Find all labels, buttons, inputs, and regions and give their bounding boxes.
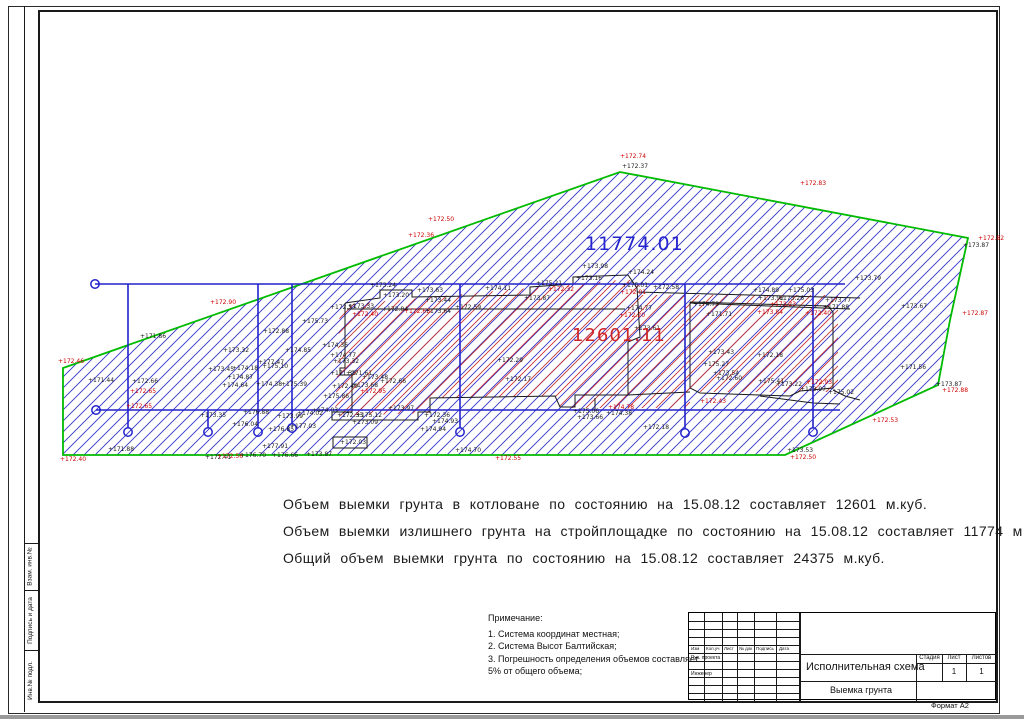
stamp-line xyxy=(737,613,738,701)
sheet-value: 1 xyxy=(943,667,965,676)
note-item: 5% от общего объема; xyxy=(488,665,699,678)
stamp-line xyxy=(689,629,799,630)
stamp-line xyxy=(799,681,997,682)
stamp-line xyxy=(689,637,799,638)
stamp-line xyxy=(754,613,755,701)
doc-title: Исполнительная схема xyxy=(806,661,916,673)
inner-frame xyxy=(38,10,998,703)
strip-cell-podpis: Подпись и дата xyxy=(23,590,38,650)
title-block: Изм Кол.уч Лист № док Подпись Дата Рук. … xyxy=(688,612,996,700)
strip-cell-inv: Инв.№ подл. xyxy=(23,650,38,710)
strip-label: Подпись и дата xyxy=(27,597,34,644)
summary-line-2: Объем выемки излишнего грунта на стройпл… xyxy=(283,523,1024,539)
format-label: Формат А2 xyxy=(900,701,1000,710)
stamp-row-1: Рук. проекта xyxy=(691,655,720,661)
stamp-row-2: Инженер xyxy=(691,671,712,677)
drawing-sheet: Взам. инв.№ Подпись и дата Инв.№ подл. +… xyxy=(0,0,1024,724)
note-item: 1. Система координат местная; xyxy=(488,628,699,641)
notes-title: Примечание: xyxy=(488,612,699,625)
stamp-line xyxy=(689,677,799,678)
stamp-col-data: Дата xyxy=(779,646,789,651)
notes-block: Примечание: 1. Система координат местная… xyxy=(488,612,699,678)
sheet-shadow xyxy=(0,715,1024,719)
stamp-line xyxy=(689,669,799,670)
stamp-line xyxy=(689,621,799,622)
summary-line-3: Общий объем выемки грунта по состоянию н… xyxy=(283,550,1024,566)
note-item: 2. Система Высот Балтийская; xyxy=(488,640,699,653)
stamp-line xyxy=(689,653,799,654)
stamp-line xyxy=(916,663,997,664)
stamp-col-list: Лист xyxy=(724,646,734,651)
sheet-label: Лист xyxy=(943,655,965,661)
stamp-col-izm: Изм xyxy=(691,646,699,651)
doc-subtitle: Выемка грунта xyxy=(806,685,916,695)
stamp-line xyxy=(689,693,799,694)
stamp-col-doc: № док xyxy=(739,646,752,651)
stamp-col-podpis: Подпись xyxy=(756,646,774,651)
strip-cell-vzam: Взам. инв.№ xyxy=(23,543,38,590)
stamp-line xyxy=(776,613,777,701)
stamp-line xyxy=(799,613,801,701)
stamp-line xyxy=(689,661,799,662)
strip-label: Инв.№ подл. xyxy=(27,661,34,700)
stamp-line xyxy=(722,613,723,701)
volume-summary: Объем выемки грунта в котловане по состо… xyxy=(283,496,1024,577)
stamp-col-koluch: Кол.уч xyxy=(706,646,720,651)
stamp-line xyxy=(689,685,799,686)
note-item: 3. Погрешность определения объемов соста… xyxy=(488,653,699,666)
summary-line-1: Объем выемки грунта в котловане по состо… xyxy=(283,496,1024,512)
strip-label: Взам. инв.№ xyxy=(27,547,34,585)
sheets-label: Листов xyxy=(967,655,996,661)
sheets-value: 1 xyxy=(967,667,996,676)
stage-label: Стадия xyxy=(917,655,942,661)
